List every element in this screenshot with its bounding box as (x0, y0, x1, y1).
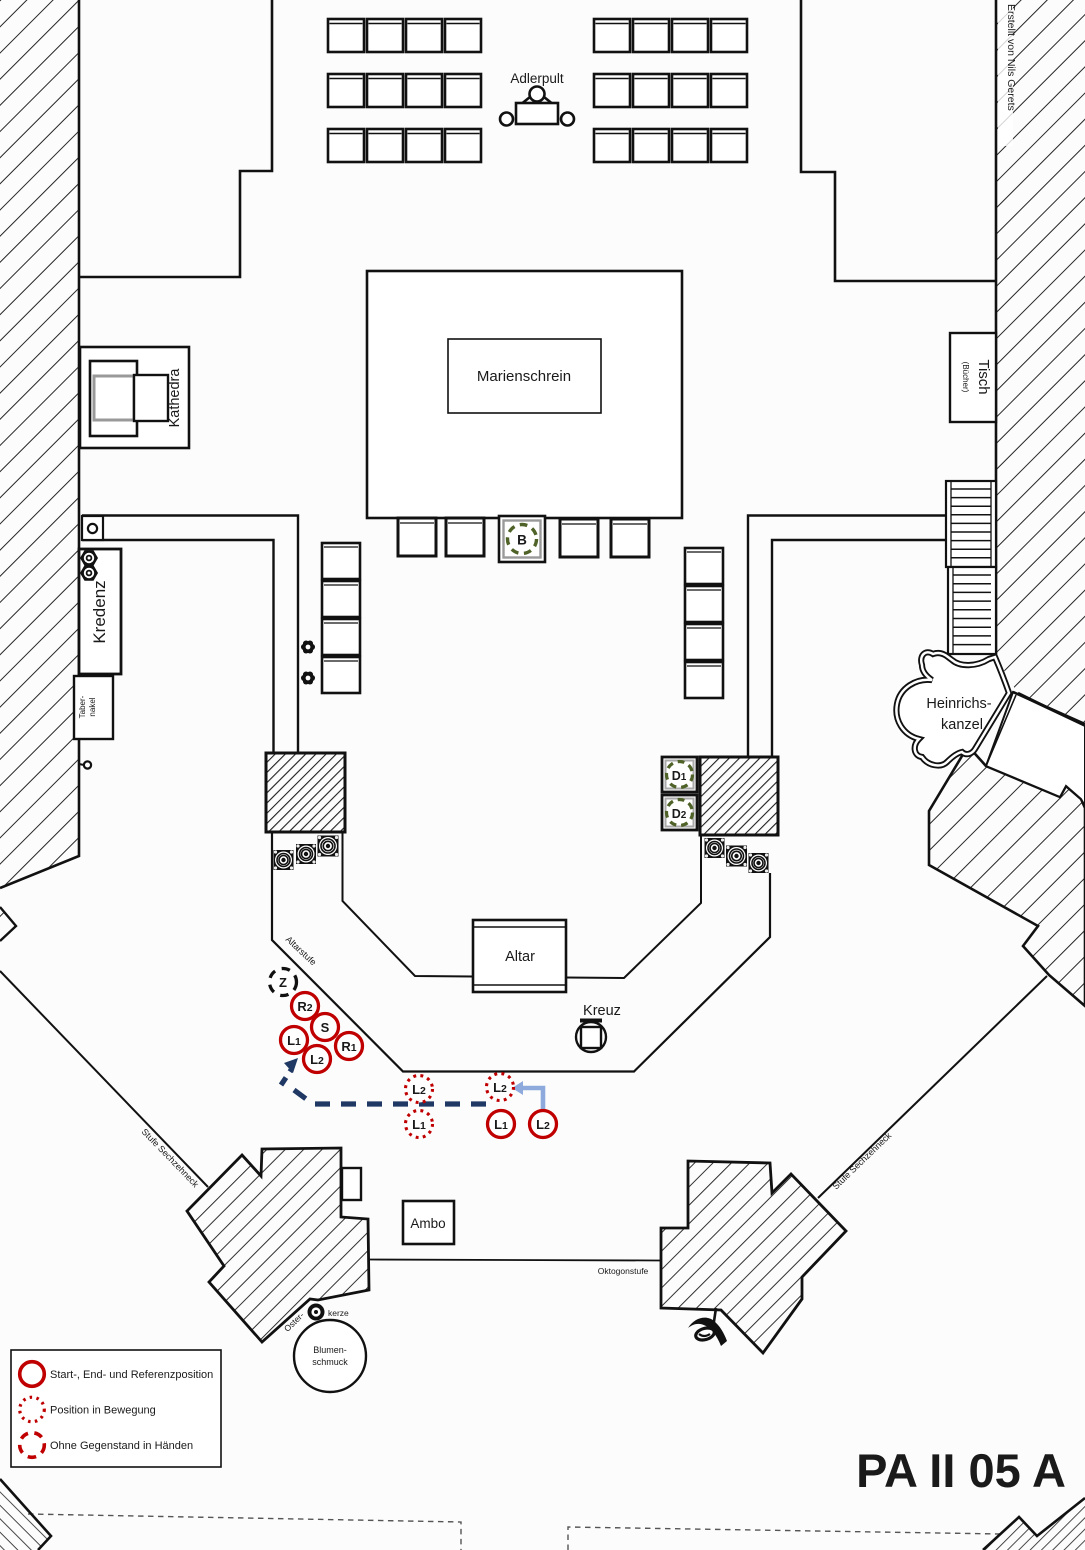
svg-text:L2: L2 (412, 1082, 426, 1097)
svg-text:Marienschrein: Marienschrein (477, 368, 571, 385)
svg-text:Tisch: Tisch (975, 359, 992, 394)
svg-text:L2: L2 (310, 1052, 324, 1067)
svg-text:L1: L1 (494, 1117, 508, 1132)
svg-text:Blumen-: Blumen- (313, 1345, 347, 1355)
svg-text:Erstellt von Nils Gerets: Erstellt von Nils Gerets (1005, 4, 1017, 111)
svg-text:Ambo: Ambo (410, 1216, 445, 1231)
svg-text:Kathedra: Kathedra (167, 368, 183, 428)
svg-text:nakel: nakel (88, 697, 97, 716)
svg-text:(Bücher): (Bücher) (961, 362, 970, 393)
svg-text:kerze: kerze (328, 1308, 349, 1318)
svg-text:Oktogonstufe: Oktogonstufe (598, 1266, 649, 1276)
svg-text:Z: Z (279, 975, 287, 990)
svg-text:Adlerpult: Adlerpult (510, 71, 564, 86)
svg-text:Taber-: Taber- (78, 695, 87, 718)
svg-text:Start-, End- und Referenzposit: Start-, End- und Referenzposition (50, 1369, 213, 1381)
svg-text:Position in Bewegung: Position in Bewegung (50, 1405, 156, 1417)
svg-text:PA II 05 A: PA II 05 A (856, 1444, 1066, 1497)
svg-text:L1: L1 (287, 1033, 301, 1048)
svg-text:S: S (321, 1020, 330, 1035)
svg-text:Altar: Altar (505, 949, 535, 965)
svg-text:D2: D2 (672, 807, 687, 821)
svg-text:Ohne Gegenstand in Händen: Ohne Gegenstand in Händen (50, 1440, 193, 1452)
svg-text:Kreuz: Kreuz (583, 1003, 621, 1019)
svg-text:Kredenz: Kredenz (90, 580, 109, 643)
svg-text:kanzel: kanzel (941, 717, 983, 733)
svg-text:schmuck: schmuck (312, 1357, 348, 1367)
svg-text:L2: L2 (536, 1117, 550, 1132)
svg-text:R2: R2 (297, 999, 312, 1014)
svg-text:Heinrichs-: Heinrichs- (926, 696, 991, 712)
svg-text:L2: L2 (493, 1080, 507, 1095)
svg-text:R1: R1 (341, 1039, 356, 1054)
svg-text:D1: D1 (672, 769, 687, 783)
svg-text:L1: L1 (412, 1117, 426, 1132)
svg-text:B: B (517, 533, 527, 548)
